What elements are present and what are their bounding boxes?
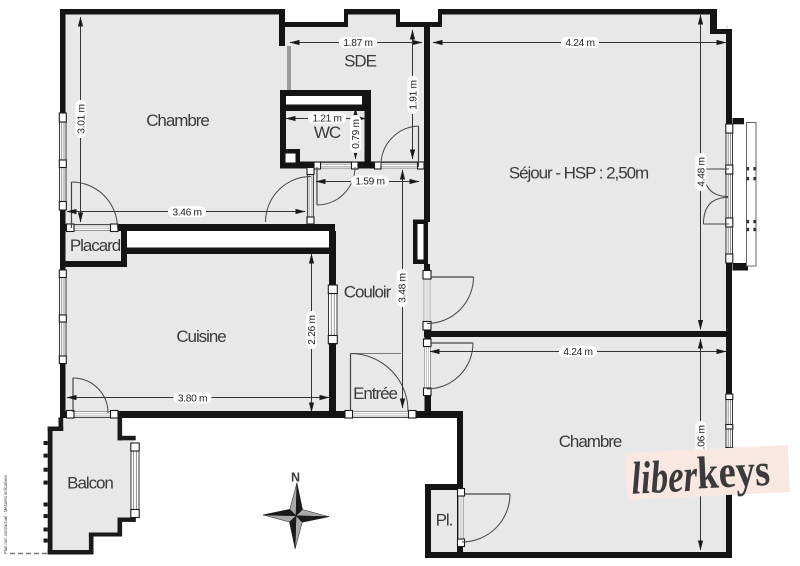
svg-text:Placard: Placard: [70, 236, 121, 255]
svg-text:2.26 m: 2.26 m: [307, 315, 318, 344]
svg-text:Plan non contractuel - Mesures: Plan non contractuel - Mesures indicativ…: [3, 475, 8, 554]
svg-text:3.01 m: 3.01 m: [77, 104, 88, 133]
svg-text:Cuisine: Cuisine: [176, 327, 226, 346]
svg-text:3.80 m: 3.80 m: [178, 394, 207, 405]
svg-text:3.46 m: 3.46 m: [172, 208, 201, 219]
svg-text:1.87 m: 1.87 m: [343, 38, 372, 49]
svg-text:N: N: [291, 471, 300, 485]
svg-text:3.48 m: 3.48 m: [398, 273, 409, 302]
svg-text:Chambre: Chambre: [146, 111, 209, 130]
svg-text:Entrée: Entrée: [353, 384, 397, 403]
svg-text:1.91 m: 1.91 m: [409, 80, 420, 109]
svg-text:Balcon: Balcon: [67, 474, 113, 493]
svg-text:Pl.: Pl.: [436, 511, 453, 530]
svg-text:0.79 m: 0.79 m: [351, 119, 362, 148]
svg-text:Chambre: Chambre: [559, 432, 622, 451]
svg-text:1.59 m: 1.59 m: [355, 177, 384, 188]
svg-text:SDE: SDE: [344, 52, 377, 71]
svg-text:Séjour - HSP : 2,50m: Séjour - HSP : 2,50m: [509, 164, 649, 183]
svg-text:4.48 m: 4.48 m: [697, 157, 708, 186]
svg-text:4.24 m: 4.24 m: [565, 38, 594, 49]
svg-text:keys: keys: [696, 444, 771, 499]
svg-text:Couloir: Couloir: [344, 283, 392, 302]
svg-text:4.24 m: 4.24 m: [563, 347, 592, 358]
svg-text:liber: liber: [630, 449, 699, 503]
svg-text:WC: WC: [314, 123, 341, 142]
